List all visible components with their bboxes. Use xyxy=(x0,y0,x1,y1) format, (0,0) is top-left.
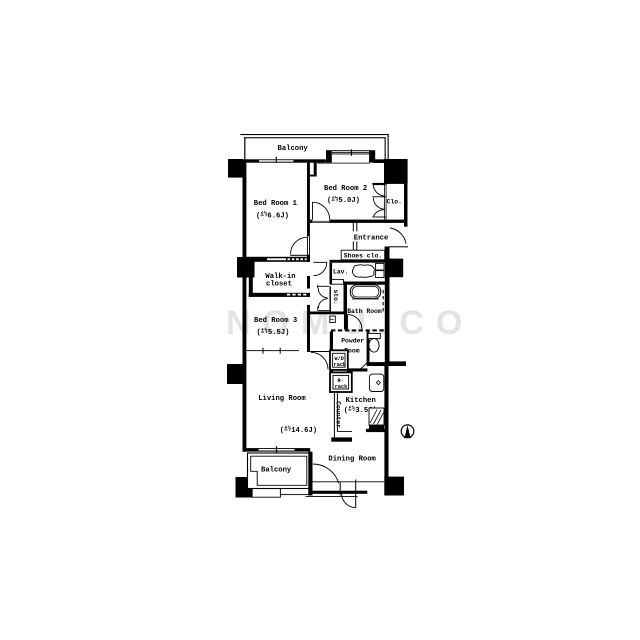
svg-text:5.0J): 5.0J) xyxy=(338,197,360,205)
svg-text:closet: closet xyxy=(266,281,292,289)
svg-text:Bed Room 2: Bed Room 2 xyxy=(324,185,367,193)
svg-text:Shoes clo.: Shoes clo. xyxy=(344,253,382,260)
svg-text:Bath Room: Bath Room xyxy=(347,308,382,315)
svg-text:Entrance: Entrance xyxy=(354,234,389,242)
svg-text:sto.: sto. xyxy=(332,290,339,305)
svg-text:Walk-in: Walk-in xyxy=(265,273,295,281)
svg-text:Lav.: Lav. xyxy=(333,268,348,275)
svg-text:Balcony: Balcony xyxy=(278,145,309,153)
svg-text:rack: rack xyxy=(334,362,346,368)
svg-text:Clo.: Clo. xyxy=(387,199,402,206)
svg-text:(: ( xyxy=(327,197,331,205)
svg-text:(: ( xyxy=(280,427,284,435)
svg-text:Balcony: Balcony xyxy=(261,466,292,474)
svg-text:Bed Room 1: Bed Room 1 xyxy=(254,200,298,208)
svg-text:14.6J): 14.6J) xyxy=(291,427,317,435)
svg-text:6.6J): 6.6J) xyxy=(267,212,289,220)
svg-text:Dining Room: Dining Room xyxy=(328,455,376,463)
svg-text:Kitchen: Kitchen xyxy=(346,397,376,405)
svg-text:rack: rack xyxy=(335,384,347,390)
svg-text:Counter: Counter xyxy=(335,401,342,428)
svg-text:Bed Room 3: Bed Room 3 xyxy=(254,317,297,325)
svg-text:(: ( xyxy=(344,407,348,415)
svg-text:Living Room: Living Room xyxy=(258,395,306,403)
svg-text:(: ( xyxy=(256,212,260,220)
svg-text:5.5J): 5.5J) xyxy=(268,329,290,337)
svg-text:(: ( xyxy=(257,329,261,337)
svg-text:Powder: Powder xyxy=(341,338,364,345)
